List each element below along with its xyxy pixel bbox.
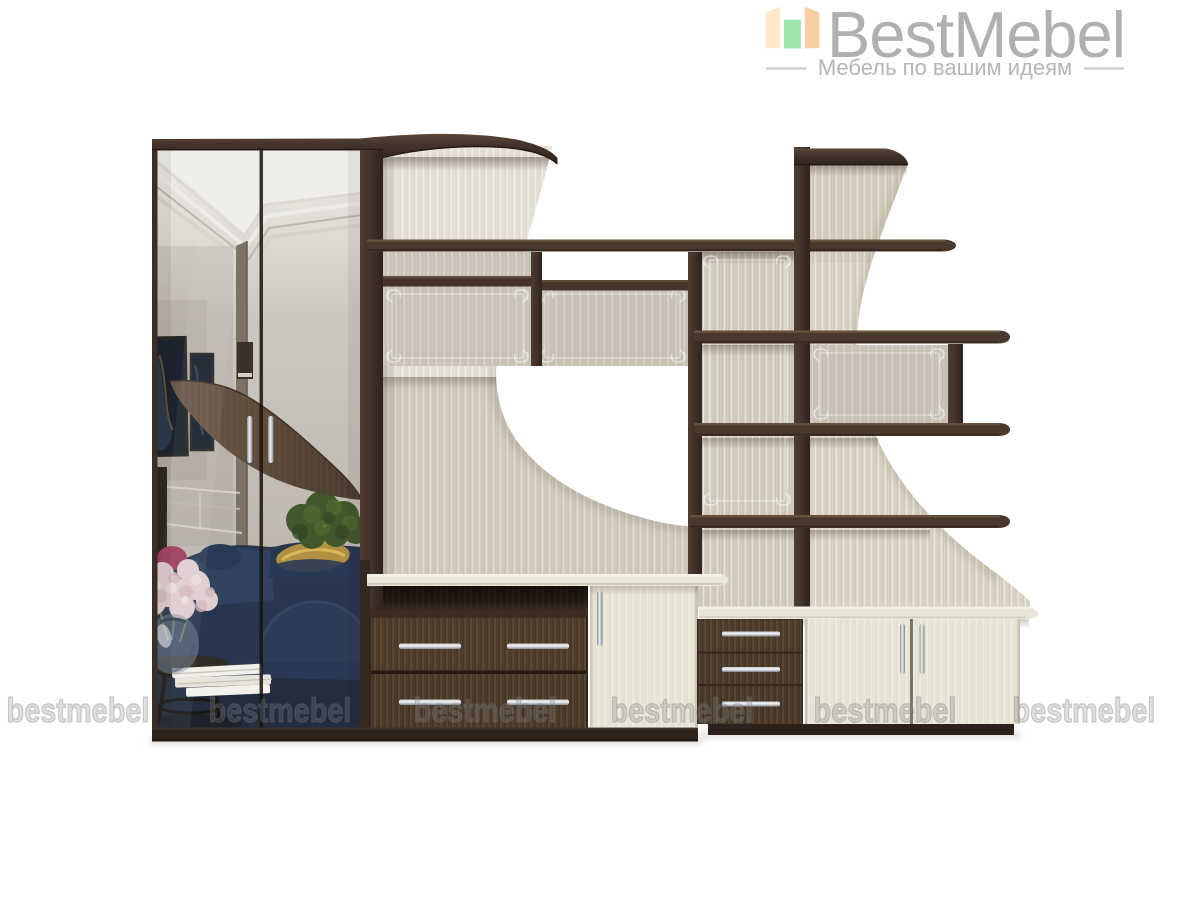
svg-text:bestmebel: bestmebel [1013, 691, 1156, 730]
svg-text:bestmebel: bestmebel [611, 691, 754, 730]
svg-text:bestmebel: bestmebel [7, 691, 150, 730]
svg-text:Мебель по вашим идеям: Мебель по вашим идеям [818, 55, 1072, 80]
svg-text:bestmebel: bestmebel [209, 691, 352, 730]
svg-text:bestmebel: bestmebel [414, 691, 557, 730]
svg-text:bestmebel: bestmebel [814, 691, 957, 730]
